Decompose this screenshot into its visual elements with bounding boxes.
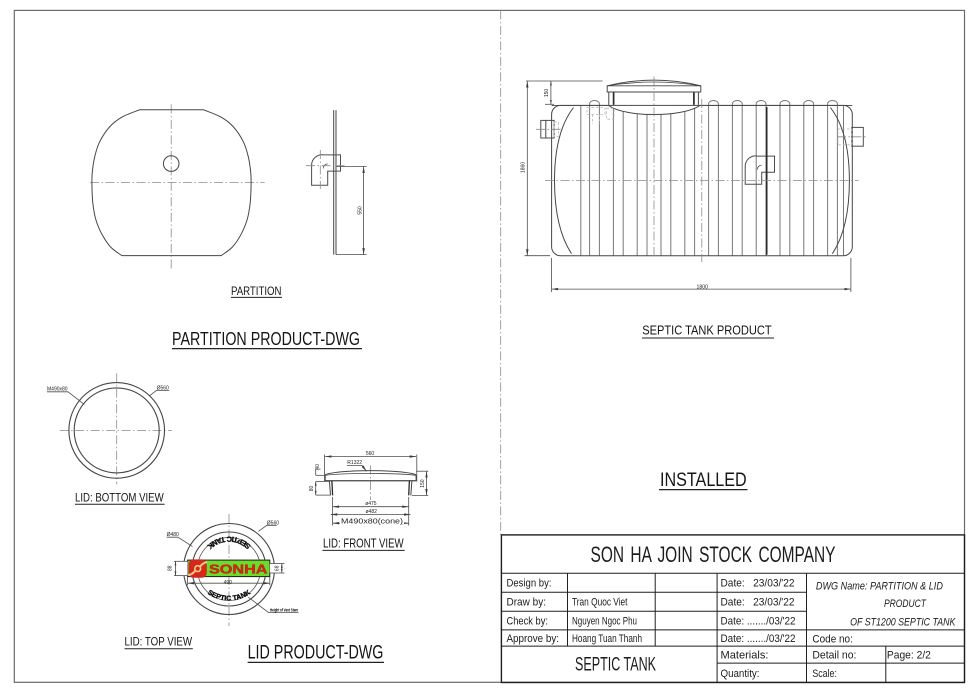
svg-text:DWG Name: PARTITION & LID: DWG Name: PARTITION & LID xyxy=(816,581,943,593)
svg-text:Date: 23/03/'22: Date: 23/03/'22 xyxy=(721,578,795,590)
svg-text:OF ST1200 SEPTIC TANK: OF ST1200 SEPTIC TANK xyxy=(850,617,956,629)
svg-text:SEPTIC TANK: SEPTIC TANK xyxy=(575,655,656,676)
svg-text:150: 150 xyxy=(544,89,550,98)
svg-text:Check by:: Check by: xyxy=(507,615,549,627)
svg-text:ø482: ø482 xyxy=(365,509,377,515)
svg-text:88: 88 xyxy=(168,565,174,571)
svg-text:150: 150 xyxy=(420,479,426,488)
svg-text:M490x80(cone): M490x80(cone) xyxy=(341,516,404,525)
svg-text:490: 490 xyxy=(224,580,233,586)
svg-text:Date: ......./03/'22: Date: ......./03/'22 xyxy=(721,615,796,627)
svg-text:Hoang Tuan Thanh: Hoang Tuan Thanh xyxy=(572,633,642,645)
svg-text:Draw by:: Draw by: xyxy=(507,597,547,609)
svg-text:Materials:: Materials: xyxy=(721,649,769,661)
svg-text:Design by:: Design by: xyxy=(507,578,552,590)
svg-text:Nguyen Ngoc Phu: Nguyen Ngoc Phu xyxy=(572,615,637,627)
svg-text:Height of Vent Stem: Height of Vent Stem xyxy=(270,608,298,614)
svg-text:Tran Quoc Viet: Tran Quoc Viet xyxy=(572,597,628,609)
svg-text:80: 80 xyxy=(309,486,315,492)
svg-text:LID: TOP VIEW: LID: TOP VIEW xyxy=(125,635,193,649)
svg-text:SEPTIC TANK PRODUCT: SEPTIC TANK PRODUCT xyxy=(642,323,772,338)
svg-text:SONHA: SONHA xyxy=(209,562,268,577)
svg-text:ø475: ø475 xyxy=(365,501,377,507)
svg-text:Scale:: Scale: xyxy=(812,668,837,680)
svg-text:PARTITION PRODUCT-DWG: PARTITION PRODUCT-DWG xyxy=(172,329,360,349)
svg-text:Date: 23/03/'22: Date: 23/03/'22 xyxy=(721,597,795,609)
svg-text:40: 40 xyxy=(315,464,321,470)
svg-text:1860: 1860 xyxy=(520,162,526,173)
svg-text:SON HA JOIN STOCK COMPANY: SON HA JOIN STOCK COMPANY xyxy=(591,542,836,567)
svg-text:560: 560 xyxy=(366,451,375,457)
svg-text:PARTITION: PARTITION xyxy=(231,284,282,298)
svg-text:LID: FRONT VIEW: LID: FRONT VIEW xyxy=(323,535,404,550)
svg-text:Page: 2/2: Page: 2/2 xyxy=(887,649,931,661)
svg-text:68: 68 xyxy=(274,565,280,571)
svg-text:Date: ......./03/'22: Date: ......./03/'22 xyxy=(721,633,796,645)
svg-text:Quantity:: Quantity: xyxy=(721,668,760,680)
svg-text:PRODUCT: PRODUCT xyxy=(884,598,927,610)
svg-text:1800: 1800 xyxy=(697,285,709,291)
svg-text:INSTALLED: INSTALLED xyxy=(660,470,747,491)
svg-text:Code no:: Code no: xyxy=(812,633,853,645)
svg-text:Detail no:: Detail no: xyxy=(812,649,856,661)
svg-text:LID: BOTTOM VIEW: LID: BOTTOM VIEW xyxy=(75,490,164,504)
svg-text:Approve by:: Approve by: xyxy=(507,633,560,645)
svg-text:550: 550 xyxy=(358,206,364,215)
svg-text:LID PRODUCT-DWG: LID PRODUCT-DWG xyxy=(248,642,384,664)
